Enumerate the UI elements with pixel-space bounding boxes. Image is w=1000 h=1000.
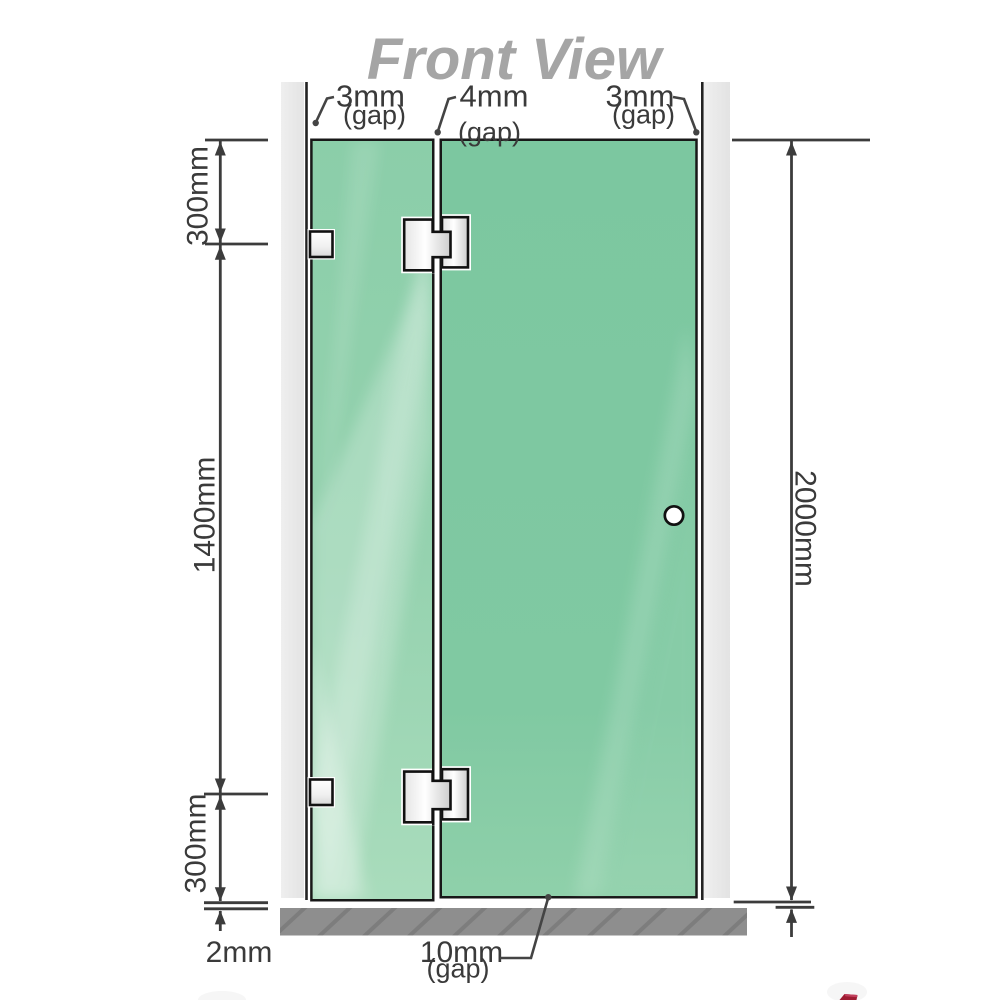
svg-text:(gap): (gap) <box>343 100 406 130</box>
svg-text:(gap): (gap) <box>426 954 489 984</box>
svg-text:2mm: 2mm <box>206 936 273 969</box>
svg-text:300mm: 300mm <box>182 146 215 246</box>
svg-text:300mm: 300mm <box>180 793 213 893</box>
svg-text:2000mm: 2000mm <box>789 470 822 587</box>
svg-text:4mm: 4mm <box>460 79 529 114</box>
svg-text:(gap): (gap) <box>612 100 675 130</box>
svg-text:(gap): (gap) <box>458 117 521 147</box>
svg-text:1400mm: 1400mm <box>189 457 222 574</box>
